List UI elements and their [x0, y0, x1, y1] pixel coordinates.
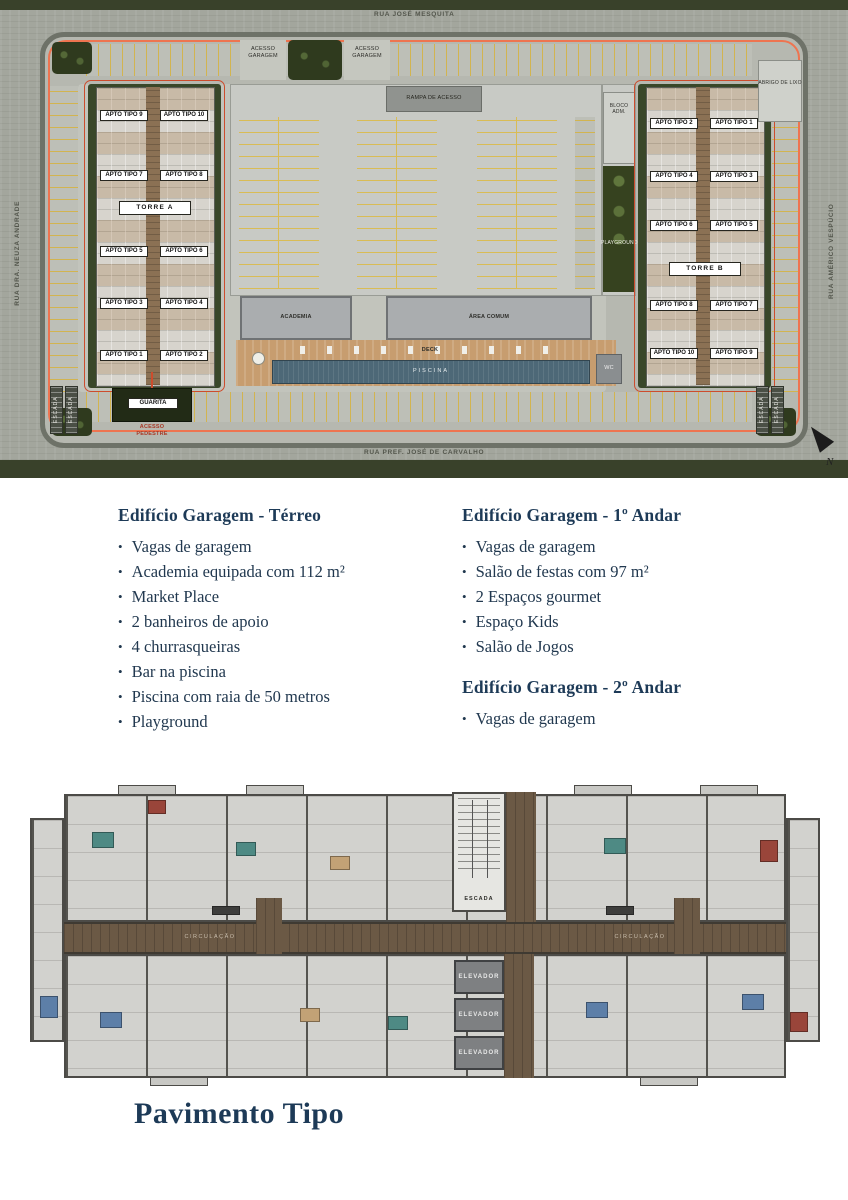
stairs-label: ESCADA: [452, 896, 506, 903]
furniture-decor: [100, 1012, 122, 1028]
furniture-decor: [330, 856, 350, 870]
elevator: ELEVADOR: [454, 1036, 504, 1070]
furniture-decor: [760, 840, 778, 862]
entry-hall: [256, 898, 282, 954]
furniture-decor: [586, 1002, 608, 1018]
entry-hall: [674, 898, 700, 954]
corridor-label: CIRCULAÇÃO: [160, 935, 260, 941]
typical-floor-title: Pavimento Tipo: [134, 1096, 344, 1132]
furniture-decor: [388, 1016, 408, 1030]
core-hall-top: [506, 792, 536, 922]
apartments-right-wing: [786, 818, 820, 1042]
elevator-bank: ELEVADOR ELEVADOR ELEVADOR: [454, 956, 504, 1076]
furniture-decor: [148, 800, 166, 814]
furniture-decor: [790, 1012, 808, 1032]
typical-floor-plan: CIRCULAÇÃO CIRCULAÇÃO ESCADA ELEVADOR EL…: [0, 0, 848, 1200]
furniture-decor: [300, 1008, 320, 1022]
furniture-decor: [742, 994, 764, 1010]
kitchen-counter-decor: [212, 906, 240, 915]
furniture-decor: [604, 838, 626, 854]
stairs: [452, 792, 506, 912]
apartments-bottom-band: [64, 954, 786, 1078]
elevator: ELEVADOR: [454, 998, 504, 1032]
stair-rails: [472, 800, 488, 878]
brochure-page: RUA JOSÉ MESQUITA RUA DRA. NEUZA ANDRADE…: [0, 0, 848, 1200]
kitchen-counter-decor: [606, 906, 634, 915]
elevator: ELEVADOR: [454, 960, 504, 994]
core-hall-bottom: [504, 954, 534, 1078]
furniture-decor: [40, 996, 58, 1018]
furniture-decor: [92, 832, 114, 848]
furniture-decor: [236, 842, 256, 856]
